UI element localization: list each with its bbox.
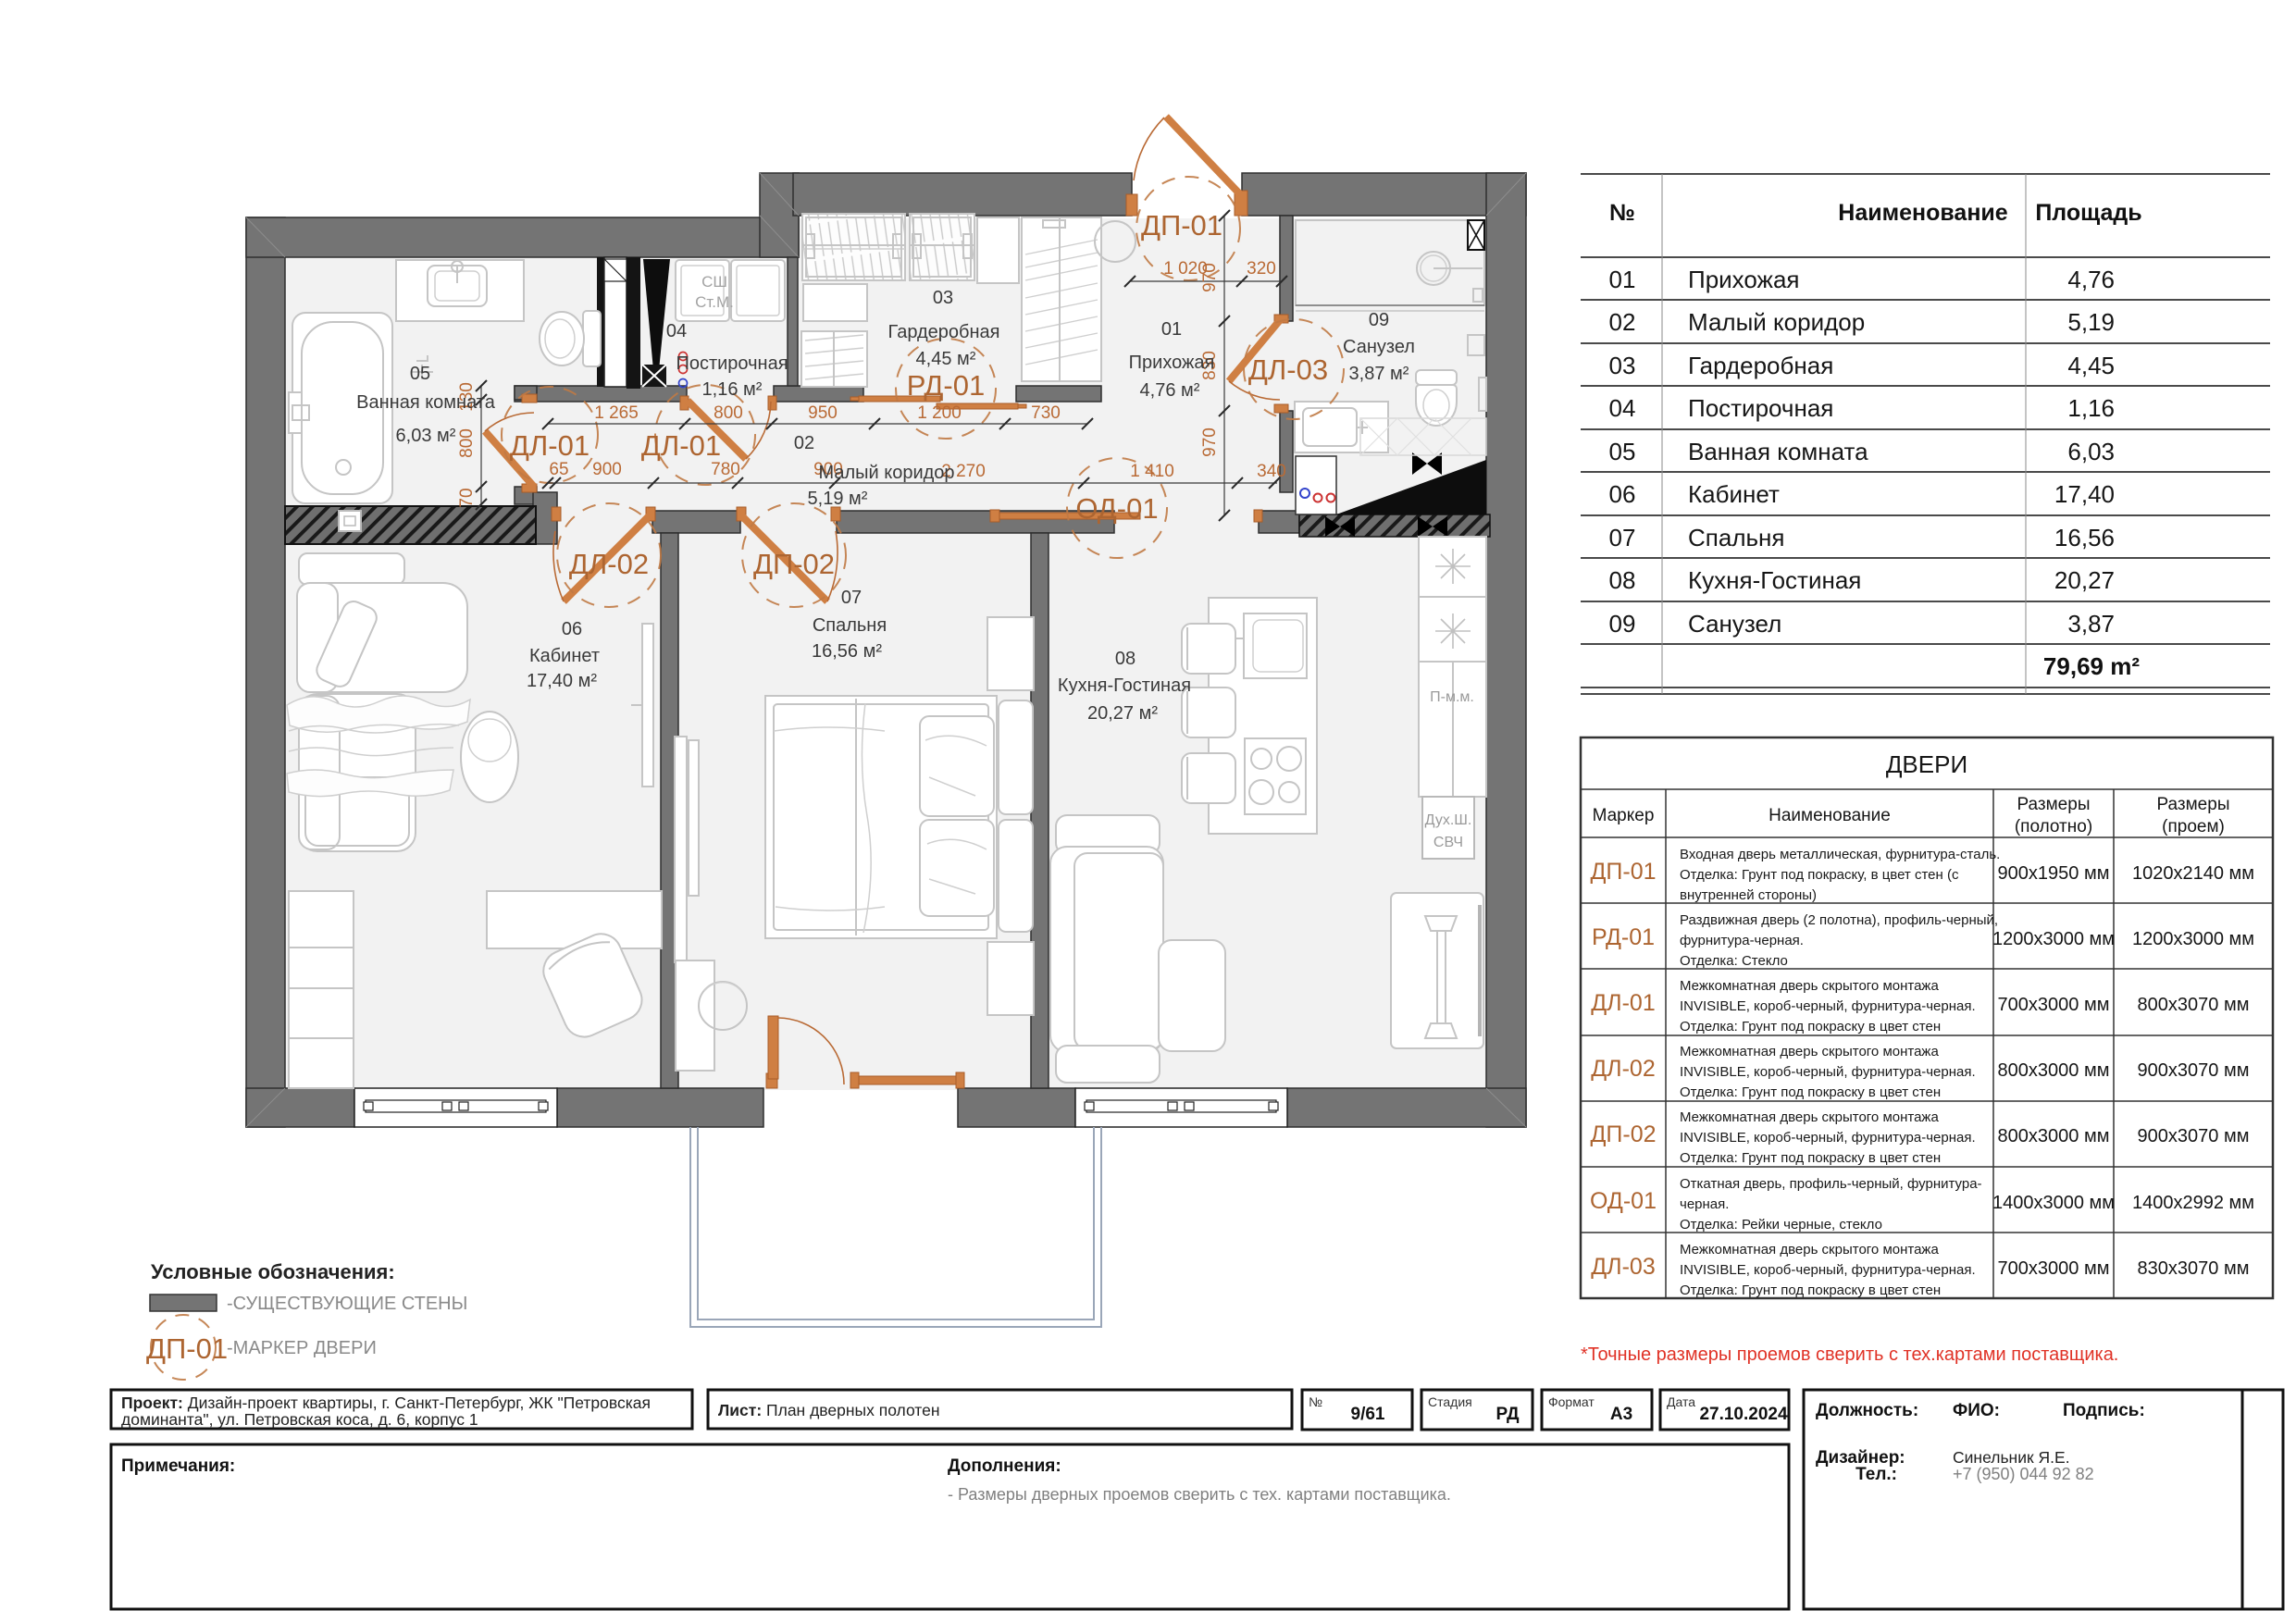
- svg-text:02: 02: [794, 433, 814, 453]
- svg-text:Межкомнатная дверь скрытого мо: Межкомнатная дверь скрытого монтажа: [1680, 1044, 1939, 1059]
- svg-text:65: 65: [549, 460, 568, 479]
- svg-text:3,87: 3,87: [2067, 610, 2115, 638]
- svg-text:1200х3000 мм: 1200х3000 мм: [1992, 929, 2115, 949]
- svg-text:Постирочная: Постирочная: [676, 353, 788, 374]
- svg-text:Прихожая: Прихожая: [1129, 353, 1215, 373]
- svg-text:ДЛ-03: ДЛ-03: [1248, 353, 1328, 386]
- svg-text:ДП-01: ДП-01: [1141, 209, 1222, 242]
- svg-text:-СУЩЕСТВУЮЩИЕ СТЕНЫ: -СУЩЕСТВУЮЩИЕ СТЕНЫ: [227, 1294, 467, 1314]
- svg-text:(проем): (проем): [2162, 817, 2225, 836]
- svg-text:830х3070 мм: 830х3070 мм: [2138, 1258, 2250, 1279]
- svg-text:+7 (950) 044 92 82: +7 (950) 044 92 82: [1953, 1465, 2094, 1483]
- svg-text:970: 970: [1200, 263, 1220, 292]
- svg-text:09: 09: [1609, 610, 1636, 638]
- svg-text:СВЧ: СВЧ: [1433, 835, 1463, 850]
- svg-text:Кабинет: Кабинет: [1688, 480, 1780, 508]
- svg-text:4,45: 4,45: [2067, 352, 2115, 379]
- svg-text:17,40: 17,40: [2054, 480, 2115, 508]
- svg-text:20,27 м²: 20,27 м²: [1087, 703, 1158, 724]
- svg-text:16,56: 16,56: [2054, 524, 2115, 551]
- svg-text:ДП-01: ДП-01: [1590, 859, 1656, 885]
- svg-text:04: 04: [1609, 394, 1636, 422]
- svg-text:Наименование: Наименование: [1769, 806, 1891, 825]
- svg-text:6,03: 6,03: [2067, 438, 2115, 465]
- svg-text:РД-01: РД-01: [1592, 924, 1655, 950]
- svg-text:04: 04: [666, 321, 687, 341]
- svg-text:Отделка: Грунт под покраску, в: Отделка: Грунт под покраску, в цвет стен…: [1680, 867, 1959, 883]
- svg-text:Размеры: Размеры: [2017, 795, 2091, 814]
- svg-text:*Точные размеры проемов сверит: *Точные размеры проемов сверить с тех.ка…: [1581, 1344, 2118, 1365]
- svg-text:Ванная комната: Ванная комната: [1688, 438, 1868, 465]
- svg-text:01: 01: [1161, 319, 1182, 340]
- svg-text:П-м.м.: П-м.м.: [1430, 689, 1474, 705]
- svg-text:Условные обозначения:: Условные обозначения:: [151, 1260, 395, 1283]
- svg-text:Межкомнатная дверь скрытого мо: Межкомнатная дверь скрытого монтажа: [1680, 1109, 1939, 1125]
- svg-text:А3: А3: [1610, 1405, 1632, 1424]
- svg-text:800х3000 мм: 800х3000 мм: [1998, 1126, 2110, 1146]
- svg-text:320: 320: [1247, 259, 1276, 279]
- svg-text:27.10.2024: 27.10.2024: [1699, 1405, 1788, 1424]
- svg-text:5,19: 5,19: [2067, 308, 2115, 336]
- svg-text:- Размеры дверных проемов свер: - Размеры дверных проемов сверить с тех.…: [948, 1485, 1451, 1504]
- svg-text:INVISIBLE, короб-черный, фурни: INVISIBLE, короб-черный, фурнитура-черна…: [1680, 1064, 1976, 1080]
- svg-text:4,76: 4,76: [2067, 266, 2115, 293]
- svg-text:900х1950 мм: 900х1950 мм: [1998, 863, 2110, 884]
- svg-text:Раздвижная дверь (2 полотна),: Раздвижная дверь (2 полотна), профиль-че…: [1680, 912, 1998, 928]
- svg-text:79,69 m²: 79,69 m²: [2043, 652, 2140, 680]
- svg-text:Наименование: Наименование: [1838, 200, 2008, 226]
- svg-text:970: 970: [1200, 427, 1220, 457]
- svg-text:Дополнения:: Дополнения:: [948, 1456, 1061, 1476]
- svg-text:INVISIBLE, короб-черный, фурни: INVISIBLE, короб-черный, фурнитура-черна…: [1680, 1262, 1976, 1278]
- svg-text:900х3070 мм: 900х3070 мм: [2138, 1060, 2250, 1081]
- svg-text:Малый коридор: Малый коридор: [818, 463, 954, 483]
- svg-text:08: 08: [1609, 566, 1636, 594]
- svg-text:Гардеробная: Гардеробная: [888, 322, 1000, 342]
- svg-text:800х3000 мм: 800х3000 мм: [1998, 1060, 2110, 1081]
- svg-text:1 265: 1 265: [594, 403, 639, 423]
- svg-text:1400х3000 мм: 1400х3000 мм: [1992, 1193, 2115, 1213]
- svg-text:09: 09: [1369, 310, 1389, 330]
- svg-text:Санузел: Санузел: [1688, 610, 1781, 638]
- svg-text:06: 06: [1609, 480, 1636, 508]
- svg-text:340: 340: [1257, 462, 1286, 481]
- svg-text:Кухня-Гостиная: Кухня-Гостиная: [1058, 675, 1191, 696]
- svg-text:Стадия: Стадия: [1428, 1394, 1472, 1409]
- svg-text:800: 800: [714, 403, 743, 423]
- svg-text:01: 01: [1609, 266, 1636, 293]
- svg-text:ДЛ-02: ДЛ-02: [569, 548, 649, 580]
- svg-text:Лист: План дверных полотен: Лист: План дверных полотен: [718, 1401, 940, 1419]
- svg-text:16,56 м²: 16,56 м²: [812, 641, 882, 662]
- svg-text:Подпись:: Подпись:: [2063, 1401, 2145, 1420]
- svg-text:Ванная комната: Ванная комната: [356, 392, 496, 413]
- svg-text:03: 03: [933, 288, 953, 308]
- svg-text:Спальня: Спальня: [1688, 524, 1784, 551]
- svg-text:РД-01: РД-01: [907, 369, 985, 402]
- svg-text:ОД-01: ОД-01: [1075, 492, 1158, 525]
- svg-text:ДП-02: ДП-02: [1590, 1121, 1656, 1147]
- svg-text:70: 70: [457, 488, 477, 507]
- svg-text:1400х2992 мм: 1400х2992 мм: [2132, 1193, 2254, 1213]
- svg-text:700х3000 мм: 700х3000 мм: [1998, 995, 2110, 1015]
- svg-text:Прихожая: Прихожая: [1688, 266, 1799, 293]
- svg-text:Малый коридор: Малый коридор: [1688, 308, 1865, 336]
- svg-text:Ст.М.: Ст.М.: [695, 293, 734, 311]
- svg-text:Размеры: Размеры: [2157, 795, 2230, 814]
- svg-text:ОД-01: ОД-01: [1590, 1188, 1657, 1214]
- svg-text:800: 800: [457, 428, 477, 458]
- svg-text:02: 02: [1609, 308, 1636, 336]
- svg-text:Дата: Дата: [1667, 1394, 1695, 1409]
- svg-text:03: 03: [1609, 352, 1636, 379]
- svg-text:20,27: 20,27: [2054, 566, 2115, 594]
- svg-text:ФИО:: ФИО:: [1953, 1401, 2000, 1420]
- svg-text:РД: РД: [1496, 1405, 1519, 1424]
- svg-text:Откатная дверь, профиль-черный: Откатная дверь, профиль-черный, фурнитур…: [1680, 1176, 1982, 1192]
- svg-text:950: 950: [808, 403, 838, 423]
- svg-text:Спальня: Спальня: [813, 615, 887, 636]
- svg-text:9/61: 9/61: [1351, 1405, 1385, 1424]
- svg-text:Должность:: Должность:: [1816, 1401, 1918, 1420]
- svg-text:07: 07: [841, 588, 862, 608]
- svg-text:ДП-01: ДП-01: [146, 1332, 228, 1365]
- svg-text:07: 07: [1609, 524, 1636, 551]
- svg-text:внутренней стороны): внутренней стороны): [1680, 887, 1817, 903]
- svg-text:Примечания:: Примечания:: [121, 1456, 235, 1476]
- svg-text:1 200: 1 200: [917, 403, 962, 423]
- svg-text:Кабинет: Кабинет: [529, 646, 600, 666]
- svg-text:Межкомнатная дверь скрытого мо: Межкомнатная дверь скрытого монтажа: [1680, 1242, 1939, 1258]
- svg-text:INVISIBLE, короб-черный, фурни: INVISIBLE, короб-черный, фурнитура-черна…: [1680, 1130, 1976, 1146]
- svg-text:1020х2140 мм: 1020х2140 мм: [2132, 863, 2254, 884]
- svg-text:4,45 м²: 4,45 м²: [916, 349, 976, 369]
- svg-text:Отделка: Грунт под покраску в: Отделка: Грунт под покраску в цвет стен: [1680, 1150, 1941, 1166]
- svg-text:Постирочная: Постирочная: [1688, 394, 1833, 422]
- svg-text:Площадь: Площадь: [2035, 200, 2141, 226]
- svg-text:Маркер: Маркер: [1593, 806, 1655, 825]
- svg-text:Отделка: Рейки черные, стекло: Отделка: Рейки черные, стекло: [1680, 1217, 1882, 1233]
- svg-text:Синельник Я.Е.: Синельник Я.Е.: [1953, 1448, 2070, 1467]
- svg-text:780: 780: [711, 460, 740, 479]
- svg-text:№: №: [1309, 1394, 1322, 1409]
- svg-text:ДЛ-01: ДЛ-01: [1591, 990, 1655, 1016]
- svg-text:Межкомнатная дверь скрытого мо: Межкомнатная дверь скрытого монтажа: [1680, 978, 1939, 994]
- svg-text:Формат: Формат: [1548, 1394, 1595, 1409]
- svg-text:Кухня-Гостиная: Кухня-Гостиная: [1688, 566, 1861, 594]
- svg-text:№: №: [1609, 200, 1635, 226]
- svg-text:Входная дверь металлическая, ф: Входная дверь металлическая, фурнитура-с…: [1680, 847, 2000, 862]
- svg-text:Отделка: Грунт под покраску в: Отделка: Грунт под покраску в цвет стен: [1680, 1282, 1941, 1298]
- svg-text:Санузел: Санузел: [1343, 337, 1415, 357]
- svg-text:черная.: черная.: [1680, 1196, 1729, 1212]
- svg-text:ДЛ-02: ДЛ-02: [1591, 1056, 1655, 1082]
- svg-text:06: 06: [562, 619, 582, 639]
- svg-text:800х3070 мм: 800х3070 мм: [2138, 995, 2250, 1015]
- svg-text:СШ: СШ: [701, 273, 727, 291]
- svg-text:1 410: 1 410: [1130, 462, 1174, 481]
- svg-text:INVISIBLE, короб-черный, фурни: INVISIBLE, короб-черный, фурнитура-черна…: [1680, 998, 1976, 1014]
- svg-text:ДЛ-03: ДЛ-03: [1591, 1254, 1655, 1280]
- svg-text:730: 730: [1031, 403, 1061, 423]
- svg-text:1,16 м²: 1,16 м²: [702, 379, 763, 400]
- svg-text:ДВЕРИ: ДВЕРИ: [1886, 750, 1967, 778]
- svg-text:Отделка: Грунт под покраску в: Отделка: Грунт под покраску в цвет стен: [1680, 1019, 1941, 1035]
- svg-text:17,40 м²: 17,40 м²: [527, 671, 597, 691]
- svg-text:1,16: 1,16: [2067, 394, 2115, 422]
- svg-text:05: 05: [410, 364, 430, 384]
- svg-text:700х3000 мм: 700х3000 мм: [1998, 1258, 2110, 1279]
- svg-text:фурнитура-черная.: фурнитура-черная.: [1680, 933, 1804, 948]
- svg-text:6,03 м²: 6,03 м²: [396, 426, 456, 446]
- svg-text:Отделка: Стекло: Отделка: Стекло: [1680, 953, 1788, 969]
- svg-text:доминанта", ул. Петровская кос: доминанта", ул. Петровская коса, д. 6, к…: [121, 1410, 478, 1429]
- svg-text:ДЛ-01: ДЛ-01: [510, 429, 590, 462]
- svg-text:4,76 м²: 4,76 м²: [1140, 380, 1200, 401]
- svg-text:05: 05: [1609, 438, 1636, 465]
- svg-text:(полотно): (полотно): [2015, 817, 2092, 836]
- svg-text:ДП-02: ДП-02: [753, 548, 835, 580]
- svg-text:Гардеробная: Гардеробная: [1688, 352, 1833, 379]
- svg-text:Дух.Ш.: Дух.Ш.: [1425, 812, 1472, 828]
- svg-text:5,19 м²: 5,19 м²: [808, 489, 868, 509]
- svg-text:Отделка: Грунт под покраску в: Отделка: Грунт под покраску в цвет стен: [1680, 1084, 1941, 1100]
- svg-text:Проект: Дизайн-проект квартиры: Проект: Дизайн-проект квартиры, г. Санкт…: [121, 1394, 651, 1412]
- svg-text:08: 08: [1115, 649, 1136, 669]
- svg-text:ДЛ-01: ДЛ-01: [641, 429, 721, 462]
- svg-text:3,87 м²: 3,87 м²: [1349, 364, 1409, 384]
- svg-text:Тел.:: Тел.:: [1855, 1465, 1897, 1484]
- svg-text:900: 900: [592, 460, 622, 479]
- svg-text:-МАРКЕР ДВЕРИ: -МАРКЕР ДВЕРИ: [227, 1338, 377, 1358]
- svg-text:1200х3000 мм: 1200х3000 мм: [2132, 929, 2254, 949]
- svg-text:900х3070 мм: 900х3070 мм: [2138, 1126, 2250, 1146]
